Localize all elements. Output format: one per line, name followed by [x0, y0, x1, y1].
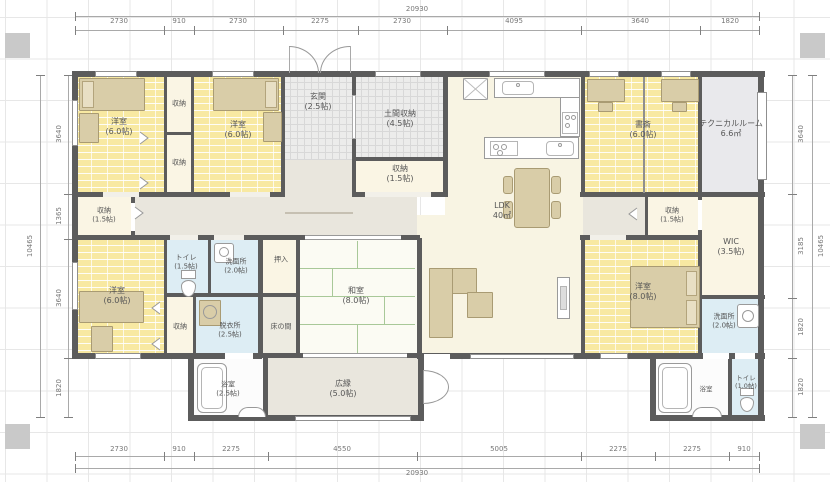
- room-label-ldk: LDK40㎡: [493, 201, 511, 221]
- genkan-step-line: [285, 212, 353, 214]
- room-genkan: [283, 75, 354, 160]
- room-label-senmen-2: 洗面所(2.0帖): [712, 312, 736, 330]
- chair-icon: [672, 102, 687, 112]
- dim-total-height-right: 10465: [817, 235, 825, 257]
- dim-right: 3185: [797, 237, 805, 255]
- room-label-yoshitsu-2: 洋室(6.0帖): [225, 120, 252, 140]
- room-label-closet-b: 収納: [172, 159, 186, 168]
- dim-bottom: 2275: [222, 445, 240, 453]
- burner-icon: [571, 115, 576, 120]
- room-label-closet-e: 収納: [173, 323, 187, 332]
- dim-top: 4095: [505, 17, 523, 25]
- chair-icon: [551, 176, 561, 194]
- room-label-closet-right: 収納(1.5帖): [660, 206, 684, 224]
- burner-icon: [493, 144, 499, 150]
- dim-left: 1820: [55, 379, 63, 397]
- dim-total-width-top: 20930: [406, 5, 428, 13]
- entrance-door-arc: [289, 46, 319, 73]
- desk-icon: [587, 79, 625, 102]
- dim-top: 2730: [229, 17, 247, 25]
- bath2-door-arc: [692, 407, 722, 417]
- dim-top: 2730: [393, 17, 411, 25]
- dining-table-icon: [514, 168, 550, 228]
- side-table-icon: [91, 326, 113, 352]
- pillow-icon: [265, 81, 277, 108]
- room-label-yoshitsu-3: 洋室(6.0帖): [104, 286, 131, 306]
- room-label-closet-a: 収納: [172, 100, 186, 109]
- corner-marker: [800, 33, 825, 58]
- room-label-toilet-1: トイレ(1.5帖): [174, 253, 198, 271]
- dim-top: 910: [172, 17, 185, 25]
- dim-bottom: 2275: [609, 445, 627, 453]
- chevron-door-icon: [627, 206, 639, 222]
- burner-icon: [565, 115, 570, 120]
- ottoman-icon: [467, 292, 493, 318]
- dim-left: 3640: [55, 125, 63, 143]
- dim-bottom: 910: [737, 445, 750, 453]
- washbasin-bowl-icon: [742, 310, 754, 322]
- dim-bottom: 2275: [683, 445, 701, 453]
- room-label-bath-2: 浴室: [700, 385, 713, 393]
- chair-icon: [503, 176, 513, 194]
- dim-top: 2275: [311, 17, 329, 25]
- chair-icon: [598, 102, 613, 112]
- chevron-door-icon: [150, 336, 162, 352]
- dim-total-height-left: 10465: [26, 235, 34, 257]
- room-label-wic: WIC(3.5帖): [718, 237, 745, 257]
- room-label-tokonoma: 床の間: [271, 323, 292, 332]
- corner-marker: [5, 33, 30, 58]
- room-label-shosai: 書斎(6.0帖): [630, 120, 657, 140]
- dim-top: 2730: [110, 17, 128, 25]
- room-label-hiroen: 広縁(5.0帖): [330, 379, 357, 399]
- genkan-hall: [283, 160, 354, 196]
- entrance-door-arc: [320, 46, 350, 73]
- room-label-closet-left: 収納(1.5帖): [92, 206, 116, 224]
- chevron-door-icon: [133, 205, 145, 221]
- desk-icon: [661, 79, 699, 102]
- room-oshiire: [260, 238, 298, 297]
- desk-icon: [263, 112, 282, 142]
- burner-icon: [501, 144, 507, 150]
- room-label-closet-c: 収納(1.5帖): [387, 164, 414, 184]
- toilet-tank-icon: [181, 270, 196, 279]
- dim-total-width-bottom: 20930: [406, 469, 428, 477]
- desk-icon: [79, 113, 99, 143]
- corner-marker: [5, 424, 30, 449]
- corner-marker: [800, 424, 825, 449]
- pillow-icon: [686, 271, 697, 296]
- room-label-technical: テクニカルルーム6.6㎡: [699, 119, 763, 139]
- room-label-doma: 土間収納(4.5帖): [384, 109, 416, 129]
- dim-bottom: 910: [172, 445, 185, 453]
- room-label-oshiire: 押入: [274, 256, 288, 265]
- dim-right: 3640: [797, 125, 805, 143]
- room-label-datsui: 脱衣所(2.5帖): [218, 321, 242, 339]
- room-label-toilet-2: トイレ(1.0帖): [735, 374, 757, 390]
- washing-machine-drum-icon: [203, 305, 217, 319]
- chevron-door-icon: [150, 300, 162, 316]
- chair-icon: [551, 201, 561, 219]
- dim-right: 1820: [797, 318, 805, 336]
- bath1-door-arc: [238, 407, 266, 417]
- burner-icon: [497, 150, 503, 156]
- ldk-exterior-door-arc: [423, 370, 449, 404]
- faucet-icon: [516, 83, 520, 87]
- dim-left: 1365: [55, 207, 63, 225]
- dim-top: 3640: [631, 17, 649, 25]
- floor-plan-canvas: 20930 2730 910 2730 2275 2730 4095 3640 …: [0, 0, 830, 482]
- bathtub-inner: [662, 367, 688, 409]
- room-label-yoshitsu-1: 洋室(6.0帖): [106, 117, 133, 137]
- sofa-icon: [429, 268, 453, 338]
- dim-bottom: 2730: [110, 445, 128, 453]
- dim-bottom: 4550: [333, 445, 351, 453]
- dim-top: 1820: [721, 17, 739, 25]
- washbasin-bowl-icon: [219, 247, 229, 257]
- burner-icon: [565, 123, 570, 128]
- room-label-genkan: 玄関(2.5帖): [305, 92, 332, 112]
- room-label-washitsu: 和室(8.0帖): [343, 286, 370, 306]
- chevron-door-icon: [138, 175, 150, 191]
- dim-right: 1820: [797, 378, 805, 396]
- tv-icon: [560, 286, 567, 310]
- fridge-x-mark: [463, 78, 488, 100]
- pillow-icon: [686, 300, 697, 325]
- chevron-door-icon: [138, 130, 150, 146]
- room-label-yoshitsu-4: 洋室(8.0帖): [630, 282, 657, 302]
- room-label-bath-1: 浴室(2.5帖): [216, 380, 240, 398]
- dim-left: 3640: [55, 289, 63, 307]
- faucet-icon: [558, 143, 562, 147]
- pillow-icon: [82, 81, 94, 108]
- dim-bottom: 5005: [490, 445, 508, 453]
- room-label-senmen-1: 洗面所(2.0帖): [224, 257, 248, 275]
